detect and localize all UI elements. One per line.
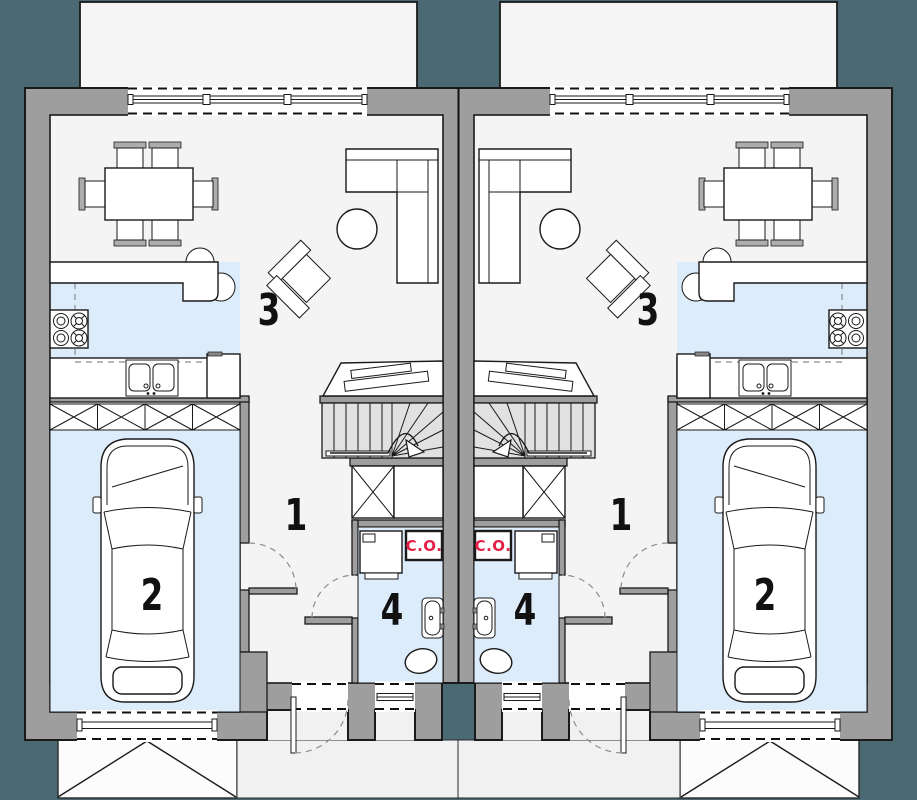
room-label-hall-left: 1 [285,490,308,541]
driveway [58,740,237,798]
car-mirror-left [93,497,101,513]
chair [152,148,178,168]
chair [117,220,143,240]
chair [193,181,213,207]
room-label-garage-right: 2 [754,570,777,621]
wardrobe [394,466,443,518]
garage [50,404,240,712]
chair [152,220,178,240]
bathroom-window [375,682,415,713]
stairs [322,403,443,458]
washing-machine [360,531,402,579]
fridge [207,352,240,398]
chair [85,181,105,207]
unit-left [25,2,460,798]
boiler-label-right: C.O. [475,537,512,555]
dining-table [105,168,193,220]
floor-plan: 3 1 2 4 C.O. 3 1 2 4 C.O. [0,0,917,800]
coffee-table [337,209,377,249]
door-leaf [291,697,296,753]
closet [352,466,443,518]
stove [50,310,88,348]
room-label-bathroom-left: 4 [381,585,404,636]
garage-lintel-xband [50,404,240,430]
room-label-garage-left: 2 [141,570,164,621]
room-label-living-left: 3 [258,285,281,336]
room-label-hall-right: 1 [610,490,633,541]
boiler-label-left: C.O. [406,537,443,555]
garage-door [77,710,217,742]
chair [117,148,143,168]
room-label-living-right: 3 [637,285,660,336]
tv-sideboard [323,361,443,396]
floor-plan-canvas: 3 1 2 4 C.O. 3 1 2 4 C.O. [0,0,917,800]
terrace-window [128,86,367,116]
room-label-bathroom-right: 4 [514,585,537,636]
unit-right [457,2,892,798]
kitchen [50,248,240,398]
bathroom-sink [422,598,444,638]
kitchen-sink [126,360,178,396]
terrace [80,2,417,88]
car-mirror-right [194,497,202,513]
